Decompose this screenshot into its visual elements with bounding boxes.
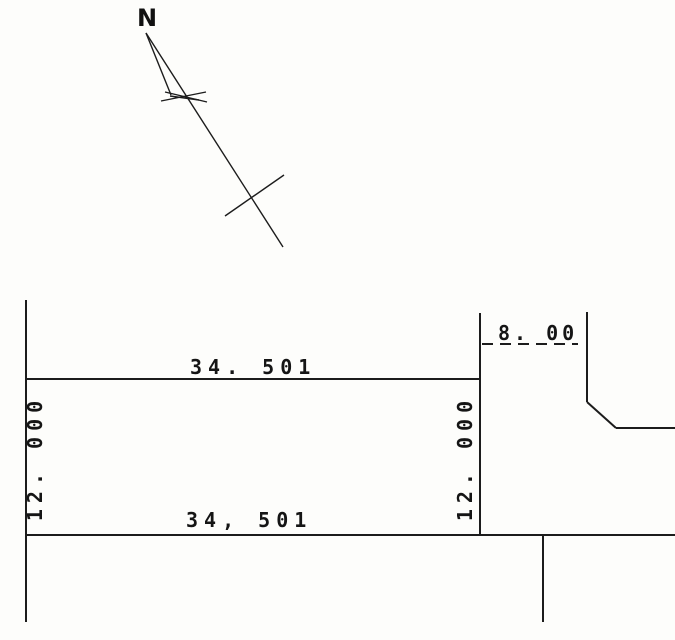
dimension-adjacent-width: 8. 00 [498, 321, 578, 345]
north-arrow-shaft [146, 33, 283, 247]
north-arrow-head-edge [146, 33, 171, 95]
dimension-top-width: 34. 501 [190, 355, 316, 379]
dimension-left-height: 12. 000 [23, 395, 47, 521]
adjacent-lot-diagonal-line [587, 402, 616, 428]
north-arrow-cross-tick [225, 175, 284, 216]
dimension-labels: 34. 501 34, 501 12. 000 12. 000 8. 00 [23, 321, 578, 532]
north-label: N [137, 4, 157, 32]
survey-drawing-canvas: N 34. 501 34, 501 12. 000 12. 000 [0, 0, 675, 640]
dimension-right-height: 12. 000 [453, 395, 477, 521]
dimension-bottom-width: 34, 501 [186, 508, 312, 532]
survey-drawing-page: N 34. 501 34, 501 12. 000 12. 000 [0, 0, 675, 640]
parcel-boundaries [26, 300, 675, 622]
north-arrow: N [137, 4, 284, 247]
